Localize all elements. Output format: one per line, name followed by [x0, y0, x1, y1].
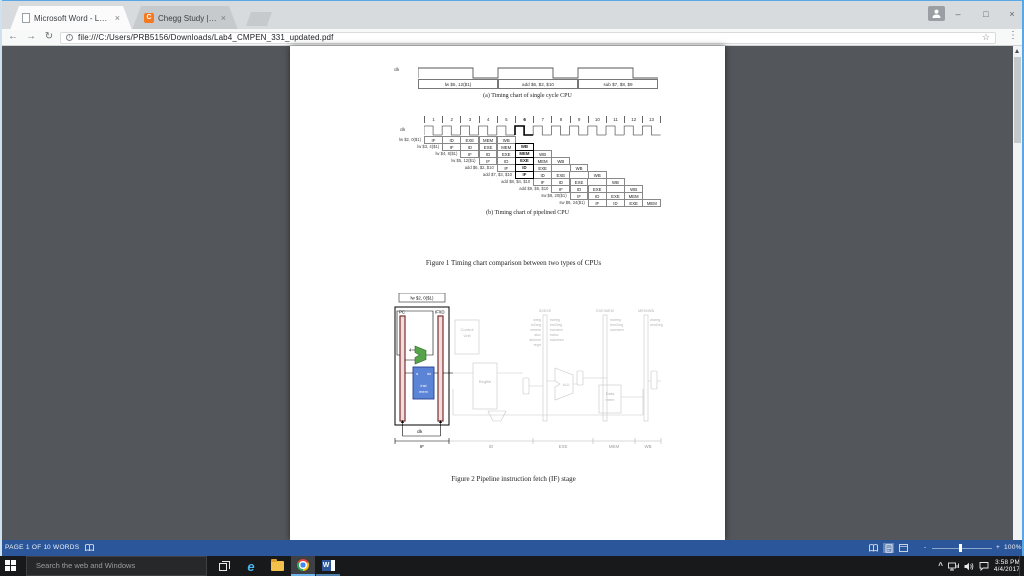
pdf-scrollbar[interactable] — [1013, 46, 1022, 540]
pdf-page: clk (a) Timing chart of single cycle CPU… — [290, 46, 725, 540]
pipeline-row-label: sw $9, 24($1) — [290, 199, 585, 206]
instruction-cell: lw $5, 12($1) — [418, 79, 498, 89]
zoom-in-button[interactable]: + — [996, 544, 1000, 551]
signal-label: ealuc — [550, 333, 559, 337]
cycle-number: 13 — [642, 116, 660, 123]
signal-label: regrt — [534, 343, 541, 347]
pipeline-row-label: sw $8, 20($1) — [290, 192, 567, 199]
alu-label: ALU — [563, 383, 570, 387]
inst-mem-label: mem — [419, 389, 428, 394]
data-mem-label: Data — [606, 391, 615, 396]
stage-cell: WB — [570, 164, 589, 172]
cycle-number: 7 — [533, 116, 551, 123]
scrollbar-thumb[interactable] — [1014, 57, 1021, 143]
print-layout-icon[interactable] — [883, 543, 894, 553]
figure1-caption: Figure 1 Timing chart comparison between… — [302, 259, 725, 267]
stage-span-label: IF — [420, 444, 424, 449]
stage-span-label: WB — [644, 444, 651, 449]
signal-label: wmem — [530, 328, 541, 332]
figure2-caption: Figure 2 Pipeline instruction fetch (IF)… — [302, 475, 725, 483]
inst-mem-label: inst — [420, 383, 427, 388]
caption-a: (a) Timing chart of single cycle CPU — [395, 93, 660, 99]
pipeline-register-header: ID/EXE — [539, 309, 552, 313]
cycle-number: 6 — [515, 116, 533, 123]
word-count[interactable]: 0 WORDS — [47, 544, 79, 551]
signal-label: mwreg — [610, 318, 621, 322]
stage-span-label: MEM — [609, 444, 620, 449]
stage-span-label: EXE — [559, 444, 568, 449]
page-count[interactable]: PAGE 1 OF 1 — [5, 544, 48, 551]
signal-label: aluimm — [529, 338, 541, 342]
taskbar-search-input[interactable]: Search the web and Windows — [26, 556, 207, 576]
adder-icon — [415, 346, 426, 364]
stage-cell: WB — [606, 178, 625, 186]
port-do-label: do — [427, 372, 431, 376]
proofing-icon[interactable] — [85, 544, 94, 552]
cycle-number: 3 — [460, 116, 478, 123]
stage-cell: IF — [515, 171, 534, 179]
instruction-cell: add $6, $2, $10 — [498, 79, 578, 89]
zoom-out-button[interactable]: - — [924, 544, 926, 551]
chegg-favicon-icon: C — [144, 13, 154, 23]
chrome-icon[interactable] — [291, 556, 315, 576]
network-icon[interactable] — [948, 562, 959, 571]
pdf-viewer: clk (a) Timing chart of single cycle CPU… — [0, 46, 1024, 540]
bookmark-star-icon[interactable]: ☆ — [982, 32, 990, 43]
signal-label: m2reg — [531, 323, 541, 327]
figure2-svg: Control Unit Regfile ALU Data mem lw $2,… — [393, 293, 663, 458]
pipeline-row-label: add $6, $2, $10 — [290, 164, 494, 171]
signal-label: wwreg — [650, 318, 660, 322]
tab-title: Microsoft Word - Lab4_C — [34, 14, 111, 23]
cycle-number: 9 — [570, 116, 588, 123]
pipeline-row-label: lw $2, 0($1) — [290, 136, 421, 143]
control-unit-label: Unit — [463, 333, 471, 338]
signal-label: em2reg — [550, 323, 562, 327]
clock-waveform-b — [424, 124, 661, 136]
pipeline-row-label: lw $3, 4($1) — [290, 143, 439, 150]
close-button[interactable]: × — [1002, 7, 1022, 21]
cycle-number: 11 — [606, 116, 624, 123]
clock-waveform-a — [418, 66, 658, 79]
zoom-slider-track[interactable] — [932, 548, 992, 549]
read-mode-icon[interactable] — [868, 543, 879, 553]
signal-label: ewreg — [550, 318, 560, 322]
start-button[interactable] — [5, 560, 17, 572]
ifid-register-label: IF/ID — [435, 310, 445, 315]
pipeline-register-header: MEM/WB — [638, 309, 654, 313]
windows-taskbar: Search the web and Windows e W ^ 3:58 PM… — [0, 556, 1024, 576]
signal-label: aluc — [534, 333, 541, 337]
tab-title: Chegg Study | Guided S — [158, 14, 217, 23]
tab-chegg-study[interactable]: C Chegg Study | Guided S × — [132, 6, 238, 30]
taskbar-clock[interactable]: 3:58 PM 4/4/2017 — [994, 559, 1020, 574]
speaker-icon[interactable] — [964, 562, 974, 571]
stage-cell: IF — [588, 199, 607, 207]
tab-microsoft-word[interactable]: Microsoft Word - Lab4_C × — [10, 6, 132, 30]
tray-time: 3:58 PM — [994, 559, 1020, 567]
edge-icon[interactable]: e — [239, 556, 263, 576]
fetched-instruction-label: lw $2, 0($1) — [411, 296, 434, 301]
file-explorer-icon[interactable] — [265, 556, 289, 576]
instruction-cell: sub $7, $8, $9 — [578, 79, 658, 89]
cycle-number: 5 — [497, 116, 515, 123]
cycle-number: 4 — [479, 116, 497, 123]
signal-label: ewmem — [550, 328, 563, 332]
reload-icon[interactable]: ↻ — [42, 31, 56, 42]
pipeline-row-label: lw $5, 12($1) — [290, 157, 476, 164]
stage-span-label: ID — [489, 444, 493, 449]
signal-label: ealuimm — [550, 338, 564, 342]
browser-menu-icon[interactable]: ⋮ — [1008, 30, 1018, 41]
tray-date: 4/4/2017 — [994, 566, 1020, 574]
signal-label: mwmem — [610, 328, 624, 332]
back-icon[interactable]: ← — [6, 31, 20, 42]
task-view-icon[interactable] — [212, 556, 236, 576]
stage-cell: WB — [588, 171, 607, 179]
browser-toolbar: ← → ↻ i file:///C:/Users/PRB5156/Downloa… — [0, 29, 1024, 46]
caption-b: (b) Timing chart of pipelined CPU — [395, 210, 660, 216]
zoom-slider-thumb[interactable] — [959, 544, 962, 552]
cycle-number: 1 — [424, 116, 442, 123]
pipeline-row-label: add $9, $5, $10 — [290, 185, 548, 192]
zoom-level[interactable]: 100% — [1004, 544, 1022, 551]
data-mem-label: mem — [606, 397, 616, 402]
address-bar[interactable]: i file:///C:/Users/PRB5156/Downloads/Lab… — [60, 32, 996, 44]
window-border-left — [0, 0, 2, 556]
cycle-number: 12 — [624, 116, 642, 123]
timing-a-instructions: lw $5, 12($1)add $6, $2, $10sub $7, $8, … — [418, 79, 658, 89]
profile-icon[interactable] — [928, 6, 945, 21]
signal-label: wm2reg — [650, 323, 663, 327]
maximize-button[interactable]: □ — [976, 7, 996, 21]
word-status-bar: PAGE 1 OF 1 0 WORDS - + 100% — [0, 540, 1024, 556]
action-center-icon[interactable] — [979, 562, 989, 571]
stage-cell: MEM — [642, 199, 661, 207]
clk-signal-label: clk — [417, 429, 423, 434]
word-icon[interactable]: W — [316, 556, 340, 576]
scroll-up-arrow-icon[interactable] — [1015, 49, 1019, 53]
pipeline-register-header: EXE/MEM — [596, 309, 614, 313]
regfile-label: Regfile — [479, 379, 492, 384]
forward-icon[interactable]: → — [24, 31, 38, 42]
system-tray: ^ 3:58 PM 4/4/2017 — [938, 556, 1020, 576]
minimize-button[interactable]: – — [948, 7, 968, 21]
url-text: file:///C:/Users/PRB5156/Downloads/Lab4_… — [78, 33, 334, 42]
pipeline-row-label: add $7, $3, $10 — [290, 171, 512, 178]
clk-label-b: clk — [400, 127, 405, 132]
signal-label: wreg — [533, 318, 541, 322]
pipeline-row-label: add $8, $4, $10 — [290, 178, 530, 185]
show-desktop-button[interactable] — [1019, 556, 1024, 576]
stage-cell: EXE — [624, 199, 643, 207]
tab-close-icon[interactable]: × — [115, 13, 120, 23]
tray-chevron-icon[interactable]: ^ — [938, 561, 943, 570]
stage-cell: WB — [551, 157, 570, 165]
web-layout-icon[interactable] — [898, 543, 909, 553]
clk-label-a: clk — [394, 67, 399, 72]
new-tab-button[interactable] — [246, 12, 272, 26]
pc-register-label: PC — [399, 310, 405, 315]
cycle-number: 8 — [551, 116, 569, 123]
document-favicon-icon — [22, 13, 30, 23]
page-info-icon[interactable]: i — [66, 34, 73, 41]
cycle-number: 2 — [442, 116, 460, 123]
tab-close-icon[interactable]: × — [221, 13, 226, 23]
stage-cell: ID — [606, 199, 625, 207]
signal-label: mm2reg — [610, 323, 623, 327]
pipeline-row-label: lw $4, 8($1) — [290, 150, 457, 157]
cycle-number: 10 — [588, 116, 606, 123]
tab-strip: Microsoft Word - Lab4_C × C Chegg Study … — [0, 0, 1024, 29]
control-unit-label: Control — [461, 327, 474, 332]
